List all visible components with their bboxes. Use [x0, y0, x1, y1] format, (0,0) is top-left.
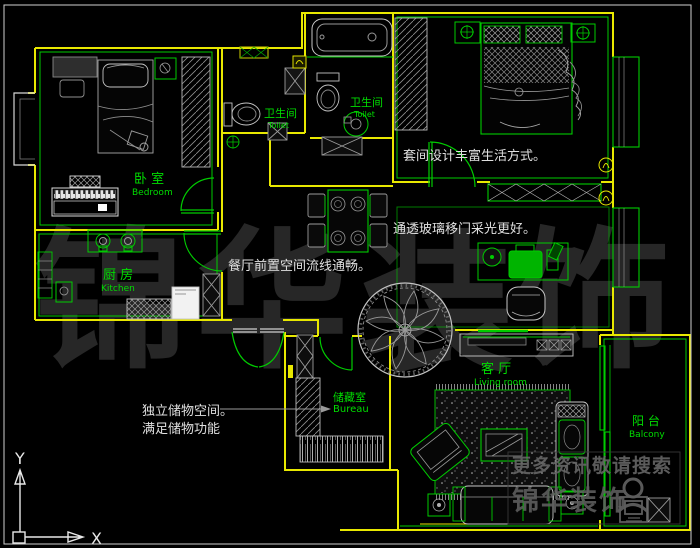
annotation-glass-door: 通透玻璃移门采光更好。: [393, 222, 536, 237]
annotation-storage-line2: 满足储物功能: [142, 422, 220, 437]
ucs-y-label: Y: [14, 449, 25, 468]
floorplan-canvas[interactable]: 锦 华 装 饰: [0, 0, 700, 548]
bedroom-piano: [52, 188, 118, 216]
dining-table: [328, 190, 368, 252]
fridge: [172, 287, 199, 319]
study-chair: [507, 287, 545, 320]
watermark-search-text: 更多资讯敬请搜索: [512, 454, 672, 477]
room-label-toilet1-en: Toilet: [267, 121, 289, 130]
tv: [468, 338, 526, 345]
room-label-bureau-en: Bureau: [333, 404, 369, 415]
shower-shaft: [285, 68, 305, 94]
bedroom-wardrobe: [182, 57, 210, 167]
room-label-living-en: Living room: [474, 378, 527, 388]
storage-door-jamb: [288, 365, 293, 378]
storage-shelves: [296, 378, 320, 436]
room-label-bureau-zh: 储藏室: [333, 390, 366, 404]
room-label-toilet2-zh: 卫生间: [350, 95, 383, 109]
room-label-balcony-en: Balcony: [629, 430, 665, 440]
balcony-ac-unit: [648, 498, 670, 522]
room-label-bedroom-en: Bedroom: [132, 188, 173, 198]
room-label-balcony-zh: 阳 台: [632, 413, 660, 428]
bookshelf: [300, 436, 383, 462]
room-label-toilet1-zh: 卫生间: [264, 106, 297, 120]
room-label-bedroom-zh: 卧 室: [134, 171, 164, 187]
room-label-toilet2-en: Toilet: [353, 110, 375, 119]
room-label-living-zh: 客 厅: [481, 361, 511, 377]
corner-sofa: [556, 402, 588, 496]
column-storage: [297, 335, 313, 378]
annotation-storage-line1: 独立储物空间。: [142, 404, 233, 419]
column-hall: [203, 274, 220, 316]
pillow: [484, 26, 520, 43]
room-label-kitchen-en: Kitchen: [101, 284, 135, 294]
watermark-brand-text: 锦华装饰: [512, 485, 628, 517]
room-label-kitchen-zh: 厨 房: [103, 267, 133, 283]
master-wardrobe: [395, 18, 427, 130]
bedroom-bed: [98, 60, 153, 153]
cad-floorplan-screenshot: 锦 华 装 饰: [0, 0, 700, 548]
annotation-suite: 套间设计丰富生活方式。: [403, 148, 546, 164]
master-bed: [481, 23, 581, 134]
kitchen-counter: [127, 299, 171, 319]
master-bedroom-furniture: [395, 18, 595, 134]
ucs-x-label: X: [91, 529, 102, 548]
bedroom-bench: [70, 176, 100, 187]
pillow: [526, 26, 562, 43]
duct-shaft: [322, 137, 362, 155]
water-heater-symbol: [293, 56, 306, 68]
bedroom-desk: [53, 57, 97, 77]
annotation-dining-flow: 餐厅前置空间流线通畅。: [228, 258, 371, 274]
